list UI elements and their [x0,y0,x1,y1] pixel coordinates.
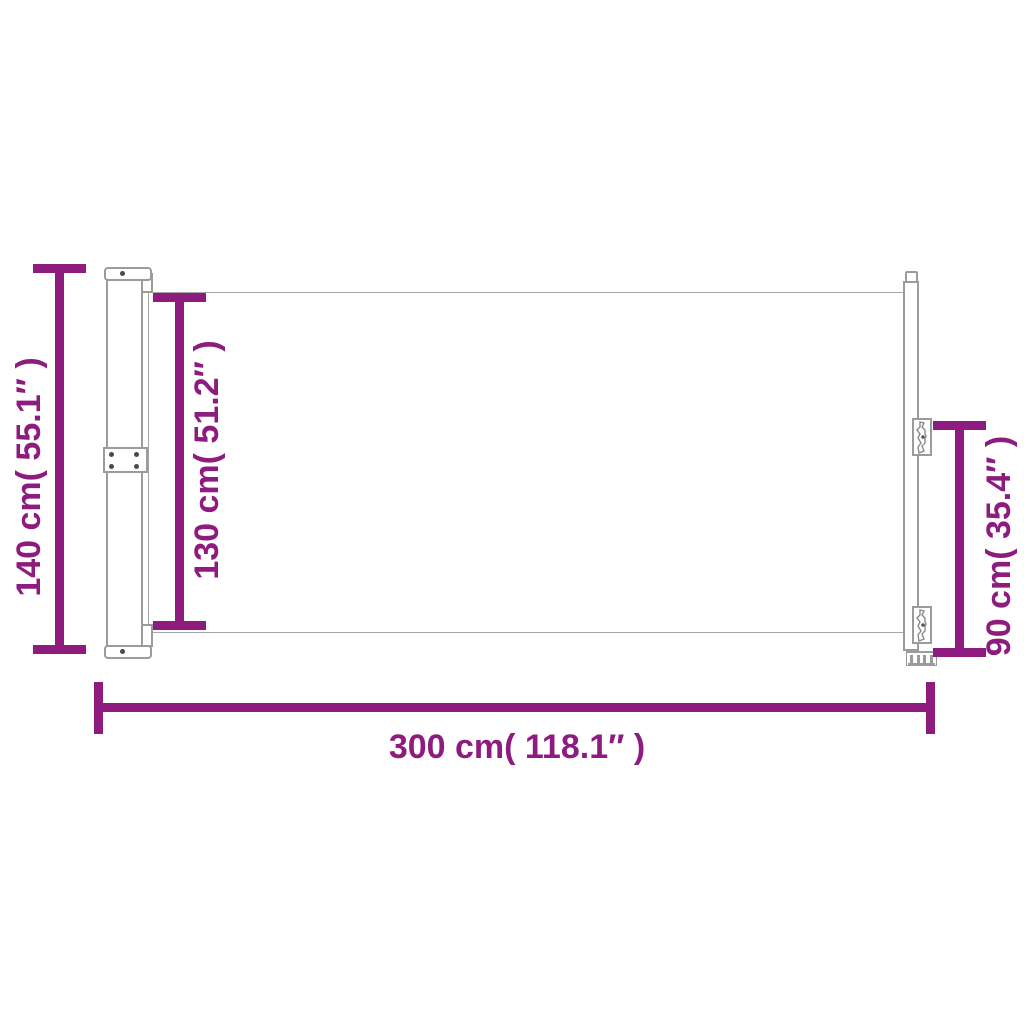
screw-icon [109,464,114,469]
dimension-130-line [175,294,184,630]
dimension-90-label: 90 cm( 35.4″ ) [982,436,1016,656]
pole-upper-latch [912,418,932,456]
pole-foot-base [908,663,935,666]
screw-icon [134,452,139,457]
cassette-top-cap [104,267,152,281]
dimension-90-line [955,422,964,657]
screw-icon [134,464,139,469]
screw-icon [120,271,125,276]
dimension-300-label: 300 cm( 118.1″ ) [389,730,645,764]
dimension-90-bottom-tick [933,648,986,657]
latch-handle-icon [914,421,929,454]
dimension-140-line [55,267,64,654]
cassette-bottom-cap [104,645,152,659]
screw-icon [109,452,114,457]
dimension-300-line [98,703,931,712]
dimension-140-bottom-tick [33,645,86,654]
cassette-mounting-plate [103,447,148,473]
dimension-300-right-tick [926,682,935,734]
dimension-140-label: 140 cm( 55.1″ ) [12,357,46,596]
dimension-130-bottom-tick [153,621,206,630]
pole-lower-latch [912,606,932,644]
pull-out-pole-body [903,281,919,651]
cassette-bottom-joint [141,624,153,647]
fabric-screen-panel [148,292,907,633]
awning-dimension-diagram: 140 cm( 55.1″ ) 130 cm( 51.2″ ) 90 cm( 3… [0,0,1024,1024]
screw-icon [120,649,125,654]
dimension-130-label: 130 cm( 51.2″ ) [190,340,224,579]
latch-handle-icon [914,609,929,642]
